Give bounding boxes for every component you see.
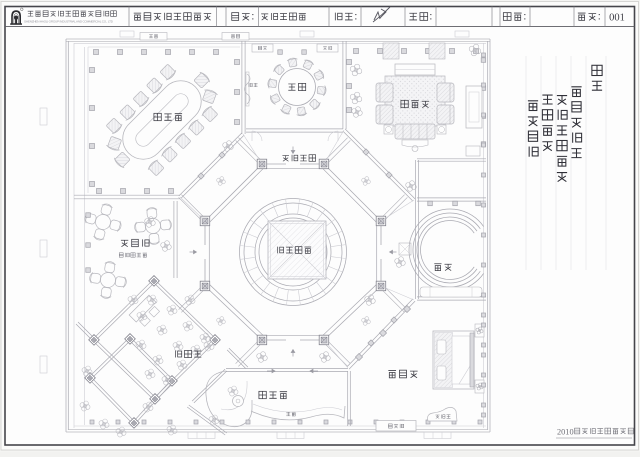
svg-text:SHENZHEN HAOLI GROUP INDUSTRIA: SHENZHEN HAOLI GROUP INDUSTRIAL AND COMM… xyxy=(24,19,114,23)
svg-text:2010: 2010 xyxy=(557,427,574,436)
svg-text:001: 001 xyxy=(609,13,625,24)
